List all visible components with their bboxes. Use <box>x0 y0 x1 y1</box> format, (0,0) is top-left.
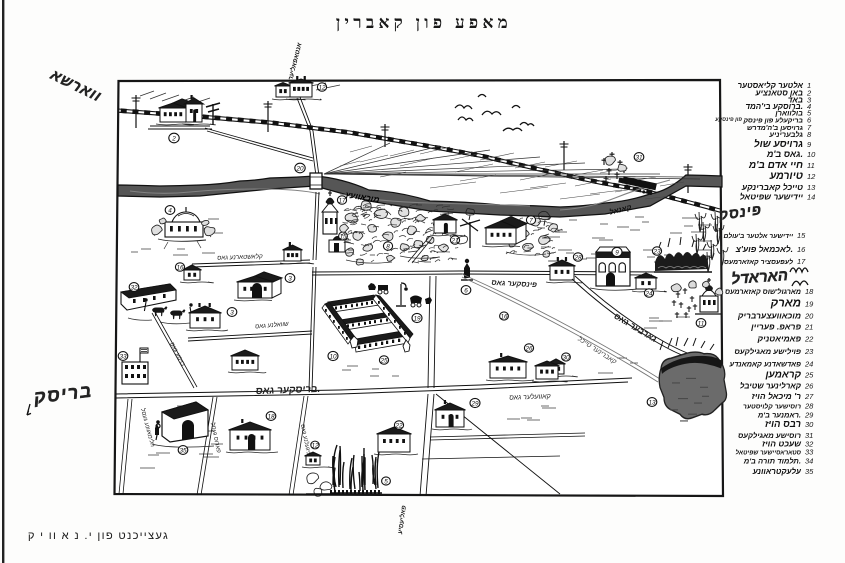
svg-text:5: 5 <box>384 478 388 485</box>
svg-text:16: 16 <box>797 245 806 254</box>
svg-text:פראפ. פעריין: פראפ. פעריין <box>750 322 801 332</box>
svg-text:33: 33 <box>119 353 127 360</box>
svg-text:גאס ב'מ.: גאס ב'מ. <box>766 149 803 159</box>
svg-text:סטאראסיישער שפיטאל: סטאראסיישער שפיטאל <box>735 449 801 457</box>
svg-text:17: 17 <box>338 197 346 204</box>
svg-text:26: 26 <box>804 382 814 391</box>
svg-text:12: 12 <box>318 84 326 91</box>
svg-text:10: 10 <box>807 150 816 159</box>
svg-text:יידישער אלטער ב'עולם: יידישער אלטער ב'עולם <box>723 232 793 240</box>
svg-text:3: 3 <box>288 275 292 282</box>
svg-text:28: 28 <box>573 254 582 261</box>
svg-text:29: 29 <box>470 400 479 407</box>
svg-text:2: 2 <box>171 135 176 142</box>
svg-text:16: 16 <box>500 313 508 320</box>
svg-text:15: 15 <box>797 231 806 240</box>
svg-text:16: 16 <box>176 264 184 271</box>
svg-text:27: 27 <box>804 392 814 401</box>
svg-text:32: 32 <box>130 284 138 291</box>
svg-text:מאפע פון קאברין: מאפע פון קאברין <box>336 13 512 32</box>
svg-text:קארלינער שטיבל: קארלינער שטיבל <box>740 382 802 391</box>
svg-text:11: 11 <box>698 320 705 327</box>
svg-text:בולווארן: בולווארן <box>774 109 803 118</box>
svg-text:13: 13 <box>807 183 816 192</box>
svg-text:24: 24 <box>644 290 653 297</box>
svg-text:35: 35 <box>179 447 187 454</box>
svg-text:טייכל קאברינקע: טייכל קאברינקע <box>741 182 803 192</box>
svg-text:8: 8 <box>386 243 390 250</box>
svg-text:19: 19 <box>805 300 814 309</box>
svg-text:35: 35 <box>805 467 814 476</box>
svg-text:עלעקטראוונע: עלעקטראוונע <box>752 467 802 476</box>
svg-text:רוסישער קלויסטער: רוסישער קלויסטער <box>743 403 801 411</box>
svg-text:17: 17 <box>797 257 806 266</box>
svg-text:22: 22 <box>394 422 403 429</box>
svg-text:25: 25 <box>379 357 388 364</box>
svg-text:18: 18 <box>267 413 275 420</box>
svg-text:פון פינסקע: פון פינסקע <box>714 117 742 123</box>
svg-text:14: 14 <box>807 193 815 202</box>
svg-text:ר' מיכאל הויז: ר' מיכאל הויז <box>752 391 801 401</box>
svg-text:לעפעסציר קאזארמעס: לעפעסציר קאזארמעס <box>724 258 793 266</box>
svg-text:פאדשאדנע קאמאנדע: פאדשאדנע קאמאנדע <box>729 360 802 369</box>
svg-text:19: 19 <box>413 315 421 322</box>
svg-text:מארק: מארק <box>770 298 801 310</box>
svg-text:18: 18 <box>805 287 814 296</box>
svg-text:7: 7 <box>529 217 533 224</box>
svg-text:22: 22 <box>804 335 814 344</box>
svg-text:מוכאוועצערבריק: מוכאוועצערבריק <box>737 311 801 321</box>
svg-text:פוילישע מאגילקעס: פוילישע מאגילקעס <box>734 347 801 356</box>
svg-text:קראמען: קראמען <box>765 370 802 381</box>
svg-text:3: 3 <box>230 309 234 316</box>
svg-text:31: 31 <box>635 154 643 161</box>
svg-text:11: 11 <box>807 161 815 170</box>
svg-text:9: 9 <box>615 249 619 256</box>
svg-text:בריקעלע פון פינסק: בריקעלע פון פינסק <box>742 117 803 125</box>
svg-text:קאוועלער גאס: קאוועלער גאס <box>509 392 551 401</box>
svg-text:23: 23 <box>652 248 661 255</box>
svg-text:רבס הויז: רבס הויז <box>765 419 801 430</box>
svg-text:34: 34 <box>805 457 813 466</box>
svg-text:13: 13 <box>648 399 656 406</box>
svg-text:לאכמאל פוע'צ.: לאכמאל פוע'צ. <box>735 244 793 254</box>
svg-text:12: 12 <box>807 172 816 181</box>
svg-text:30: 30 <box>805 420 814 429</box>
svg-text:23: 23 <box>804 347 814 356</box>
svg-text:20: 20 <box>804 312 814 321</box>
svg-text:געצייכנט פון י. נ א וו י ק: געצייכנט פון י. נ א וו י ק <box>28 530 169 542</box>
svg-text:6: 6 <box>464 287 468 294</box>
svg-text:26: 26 <box>524 345 533 352</box>
svg-text:25: 25 <box>804 371 814 380</box>
svg-text:28: 28 <box>804 402 814 411</box>
svg-text:תלמוד תורה ב'מ.: תלמוד תורה ב'מ. <box>743 457 801 466</box>
svg-text:29: 29 <box>804 411 814 420</box>
svg-text:24: 24 <box>804 360 813 369</box>
svg-text:מארגול'שוס קאזארמעס: מארגול'שוס קאזארמעס <box>725 287 801 296</box>
svg-text:20: 20 <box>295 165 304 172</box>
svg-text:פאמיאטניק: פאמיאטניק <box>756 334 801 344</box>
svg-text:30: 30 <box>562 354 570 361</box>
svg-text:טיורמע: טיורמע <box>769 170 803 182</box>
svg-text:גלבעריניע: גלבעריניע <box>768 130 803 139</box>
svg-text:12: 12 <box>311 442 319 449</box>
svg-text:4: 4 <box>168 207 172 214</box>
svg-text:33: 33 <box>805 448 814 457</box>
svg-text:21: 21 <box>804 323 813 332</box>
svg-text:קלאשטארנע גאס: קלאשטארנע גאס <box>217 252 263 262</box>
svg-text:שעכט הויז: שעכט הויז <box>762 439 802 449</box>
svg-text:בריסקער גאס.: בריסקער גאס. <box>255 384 320 397</box>
svg-text:10: 10 <box>329 353 337 360</box>
svg-text:יידישער שפיטאל: יידישער שפיטאל <box>740 192 804 202</box>
